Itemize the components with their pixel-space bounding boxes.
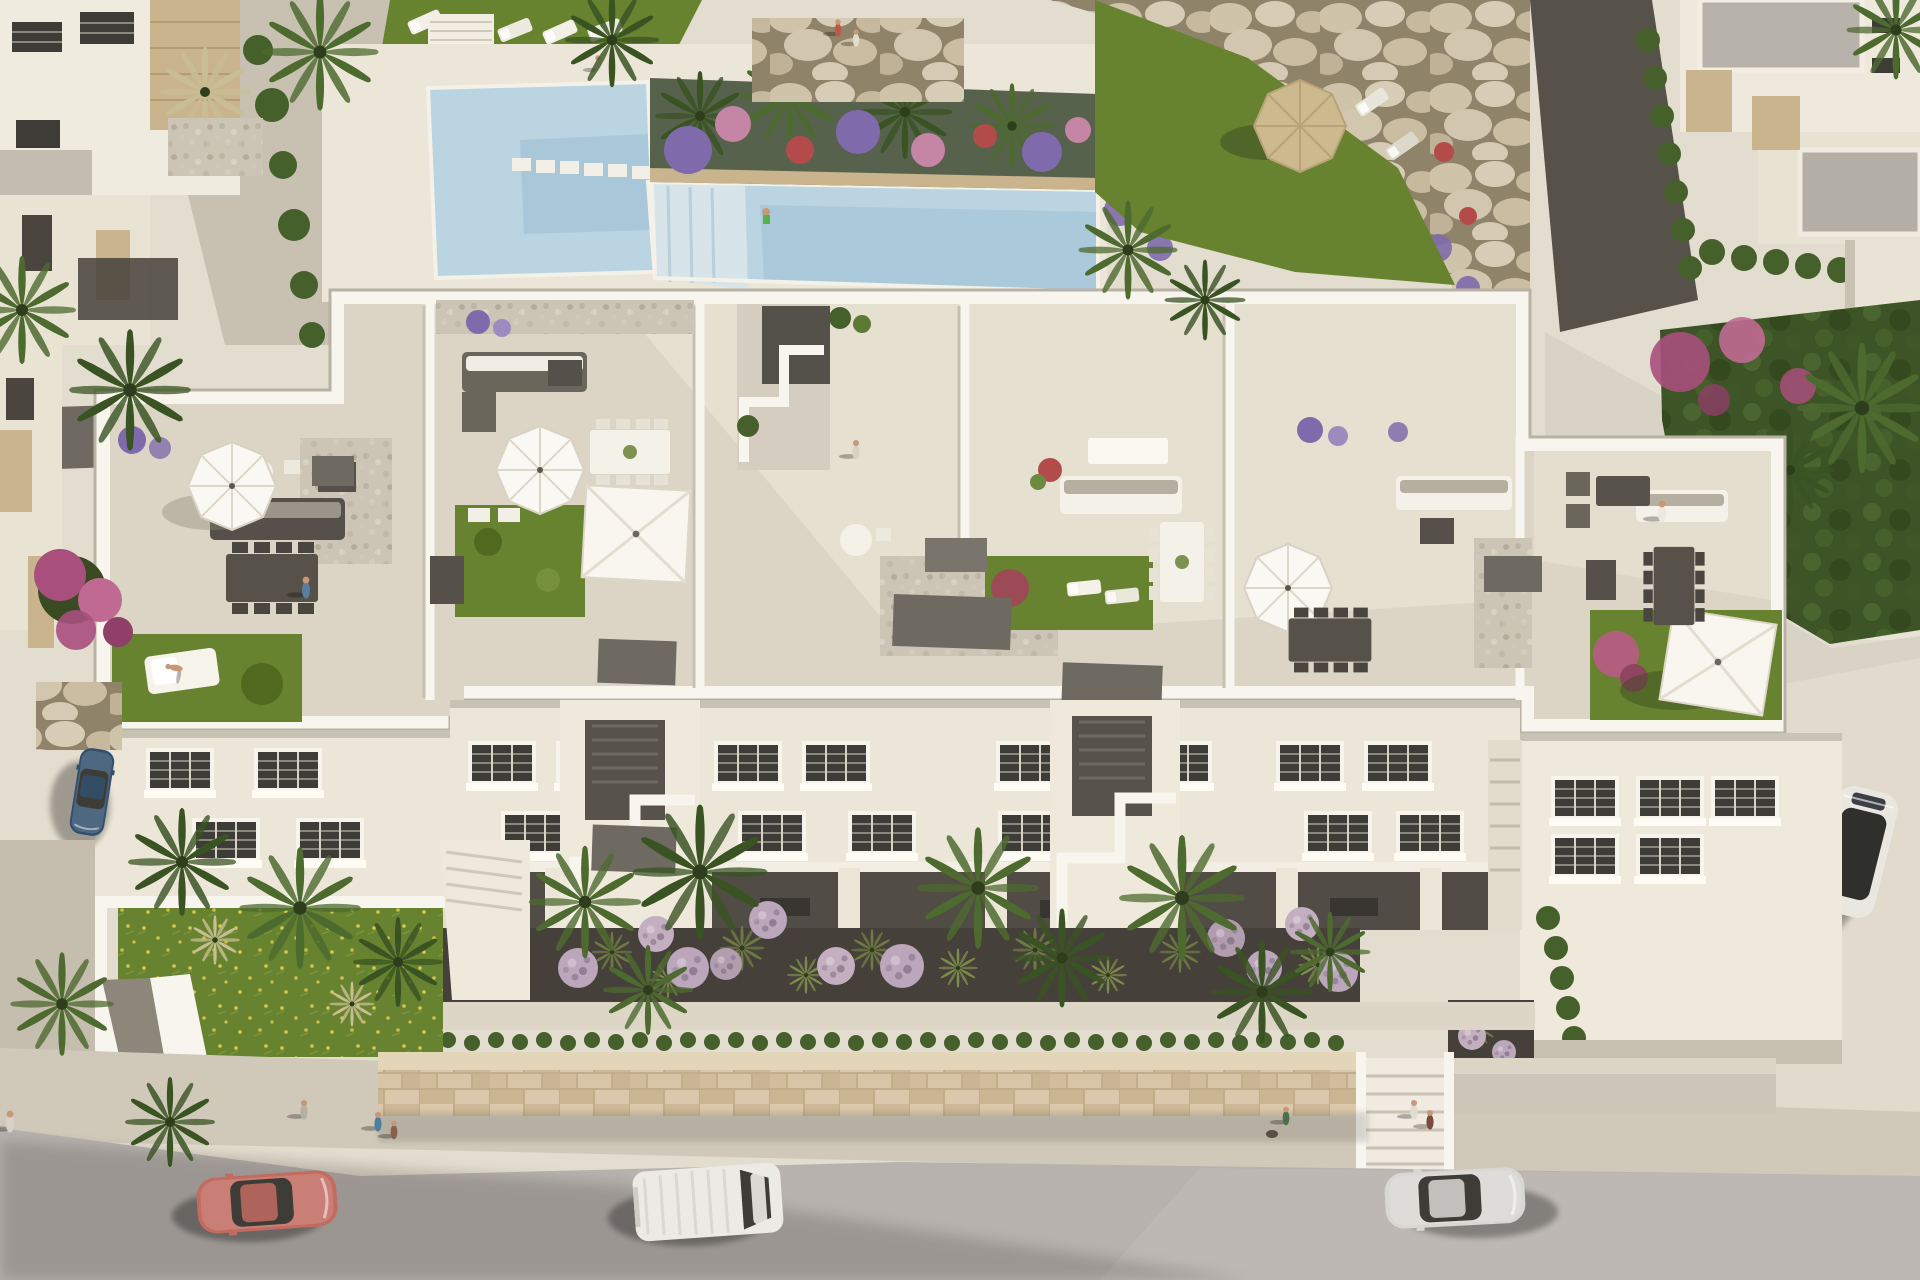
roof-lawn-bay2	[455, 505, 585, 617]
roof-lawn-bay4	[985, 556, 1153, 630]
shrub-row	[243, 35, 325, 348]
terrace-divider-walls	[430, 304, 1520, 700]
lavender-balls	[558, 901, 1516, 1064]
pool-lawn	[1095, 0, 1455, 285]
silver-sedan	[1383, 1163, 1558, 1238]
terrace-bay1-furniture	[162, 442, 356, 614]
exterior-stair-tower-1	[560, 700, 700, 930]
side-path	[1530, 0, 1698, 332]
pebble-bed	[168, 118, 263, 176]
facade-right-wing	[1520, 733, 1842, 1063]
terrace-planters	[118, 307, 1408, 490]
swimmer	[762, 208, 770, 224]
windows-row-lower	[190, 811, 1706, 884]
pebble-patch	[880, 556, 1058, 656]
flower-masses	[664, 106, 1091, 174]
pool-planter-island	[650, 47, 1098, 191]
sidewalk	[0, 1048, 1920, 1185]
sunbathing-lawn	[380, 0, 702, 72]
parked-blue-sedan	[50, 746, 118, 849]
terrace-bay3	[737, 304, 1012, 650]
dog	[1266, 1130, 1278, 1138]
far-left-neighbor	[0, 330, 133, 1122]
divider-shadows	[424, 306, 1224, 698]
boulder-wall-small	[752, 18, 964, 102]
foreground-palm-trees	[0, 0, 1920, 1167]
gravel-bed-right	[1448, 1000, 1534, 1064]
white-van	[608, 1162, 784, 1246]
driveway-sunlit	[1660, 658, 1920, 1280]
poolside-people	[583, 19, 859, 73]
facade-left-wing	[95, 730, 450, 902]
palm-tree	[1745, 425, 1835, 515]
apartment-building-roof	[0, 290, 1785, 733]
right-wing-terrace-furniture	[1566, 472, 1728, 625]
right-wing-base	[1520, 1040, 1842, 1064]
pebble-patch	[1474, 538, 1532, 668]
gray-roof-slab	[59, 403, 167, 469]
boundary-wall	[378, 1052, 1776, 1180]
low-hedge-line	[392, 1032, 1344, 1051]
building-shadow-on-street	[0, 1140, 1250, 1280]
aerial-render	[0, 0, 1920, 1280]
bougainvillea-cluster	[1650, 317, 1816, 416]
roof-slab	[95, 290, 1785, 733]
terrace-bay4-furniture	[839, 438, 1215, 602]
right-garden-driveway	[1545, 300, 1920, 1280]
dark-planting-bed	[78, 258, 178, 320]
front-gardens	[0, 330, 1535, 1122]
pool-deck	[322, 44, 1107, 302]
sun-loungers	[407, 9, 624, 46]
coral-sedan	[172, 1166, 339, 1242]
palm-tree	[1797, 343, 1920, 474]
neighbor-villa-top-left	[0, 0, 240, 345]
roof-slab-boxes	[312, 456, 1163, 714]
terrace-bay2-furniture	[0, 352, 690, 612]
driveway-hedge	[1545, 779, 1595, 1025]
boulder-wall-large	[1050, 0, 1530, 300]
neighbor-buildings-top-right	[1680, 0, 1920, 640]
pedestrians	[0, 1100, 1434, 1139]
ornamental-grasses	[592, 926, 1496, 1047]
front-walkway	[420, 1002, 1535, 1030]
driveway	[1545, 332, 1920, 1280]
scene-canvas	[0, 0, 1920, 1280]
white-suv-dark-roof	[1774, 782, 1901, 945]
windows-row-upper	[144, 741, 1781, 826]
pebble-strip	[436, 300, 694, 334]
terrace-floor	[110, 304, 1771, 719]
pedestrian	[1563, 923, 1586, 945]
stepping-stones	[512, 158, 651, 179]
upper-neighborhood	[0, 0, 1920, 640]
building-shadow-on-driveway	[1545, 700, 1705, 1280]
roof-lawn-right-wing	[1590, 608, 1782, 720]
street	[0, 1128, 1920, 1280]
left-neighbor-garden	[62, 840, 530, 1118]
gravel-bed	[440, 928, 1360, 1002]
building-facades	[95, 700, 1842, 1064]
cypress-hedge	[1636, 28, 1702, 280]
pebble-patch	[300, 438, 392, 564]
right-wing-stair	[1488, 740, 1522, 930]
street-zone	[0, 1048, 1920, 1280]
pampas-grass	[160, 47, 250, 137]
rock-base-flowers	[1104, 194, 1480, 300]
rock-bed	[36, 682, 122, 750]
bougainvillea-tree	[34, 549, 133, 650]
wall-shadow	[378, 1112, 1368, 1142]
pedestrian	[1581, 933, 1604, 955]
swimming-pool	[428, 82, 1098, 292]
white-steps	[428, 14, 494, 58]
dense-garden	[1660, 300, 1920, 644]
roof-lawn-left	[112, 634, 302, 722]
right-wing-base-hedge	[1536, 906, 1586, 1050]
exterior-stair-tower-2	[1050, 700, 1180, 930]
straw-parasol-area	[1220, 80, 1477, 225]
ground-base	[0, 0, 1920, 1280]
entrance-stairs	[1356, 1052, 1454, 1180]
facade-center	[450, 700, 1520, 930]
street-sunlit	[1100, 1168, 1920, 1280]
garden-path	[140, 0, 400, 345]
ground-floor-patios	[455, 862, 1515, 930]
terrace-bay5-furniture	[1244, 476, 1542, 672]
